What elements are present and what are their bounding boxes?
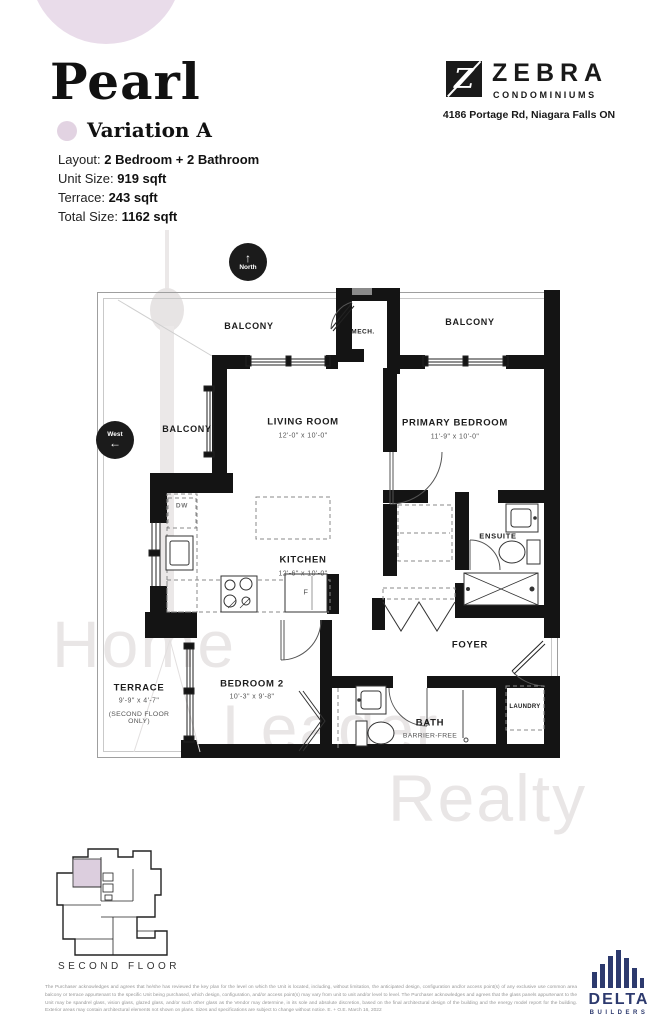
- dims-primary-bedroom: 11'-9" x 10'-0": [431, 434, 480, 441]
- label-living-room: LIVING ROOM: [267, 417, 339, 428]
- variation-dot: [57, 121, 77, 141]
- zebra-logo-icon: Z: [446, 61, 482, 97]
- watermark-realty: Realty: [388, 760, 587, 836]
- label-dishwasher: DW: [176, 503, 188, 510]
- keyplan-caption: SECOND FLOOR: [58, 961, 180, 972]
- label-primary-bedroom: PRIMARY BEDROOM: [402, 418, 508, 429]
- label-terrace: TERRACE: [114, 683, 165, 694]
- page-title: Pearl: [50, 52, 201, 111]
- label-mech: MECH.: [351, 329, 374, 336]
- dims-kitchen: 12'-6" x 10'-0": [278, 571, 327, 578]
- keyplan-highlighted-unit: [73, 859, 101, 887]
- label-foyer: FOYER: [452, 640, 488, 651]
- label-bath: BATH: [416, 718, 444, 729]
- note-terrace: (SECOND FLOOR ONLY): [106, 711, 172, 725]
- spec-layout: Layout: 2 Bedroom + 2 Bathroom: [58, 150, 259, 169]
- keyplan-drawing: [33, 843, 185, 961]
- dims-bedroom-2: 10'-3" x 9'-8": [230, 694, 275, 701]
- spec-terrace: Terrace: 243 sqft: [58, 188, 259, 207]
- svg-text:DELTA: DELTA: [589, 991, 650, 1008]
- label-kitchen: KITCHEN: [279, 555, 326, 566]
- north-arrow: ↑North: [229, 243, 267, 281]
- label-laundry: LAUNDRY: [509, 704, 540, 710]
- label-balcony-top-right: BALCONY: [445, 317, 494, 327]
- decorative-circle: [30, 0, 182, 44]
- label-ensuite: ENSUITE: [479, 532, 516, 541]
- dims-living-room: 12'-0" x 10'-0": [278, 433, 327, 440]
- brand-subtitle: CONDOMINIUMS: [493, 90, 597, 100]
- brand-name: ZEBRA: [492, 59, 608, 88]
- unit-specs: Layout: 2 Bedroom + 2 Bathroom Unit Size…: [58, 150, 259, 226]
- spec-total-size: Total Size: 1162 sqft: [58, 207, 259, 226]
- svg-text:BUILDERS: BUILDERS: [590, 1010, 649, 1016]
- label-balcony-top-left: BALCONY: [224, 321, 273, 331]
- west-arrow: West←: [96, 421, 134, 459]
- variation-label: Variation A: [87, 118, 212, 142]
- floorplan-flyer: Home Leader Realty Pearl Variation A Lay…: [0, 0, 666, 1030]
- label-fridge: F: [303, 588, 308, 597]
- label-bedroom-2: BEDROOM 2: [220, 679, 284, 690]
- disclaimer-text: The Purchaser acknowledges and agrees th…: [45, 984, 577, 1015]
- dims-terrace: 9'-9" x 4'-7": [119, 698, 159, 705]
- delta-builders-logo: DELTA BUILDERS: [582, 944, 656, 1020]
- spec-unit-size: Unit Size: 919 sqft: [58, 169, 259, 188]
- label-balcony-left: BALCONY: [162, 424, 211, 434]
- brand-address: 4186 Portage Rd, Niagara Falls ON: [438, 109, 620, 121]
- note-bath-barrier-free: BARRIER-FREE: [403, 733, 457, 740]
